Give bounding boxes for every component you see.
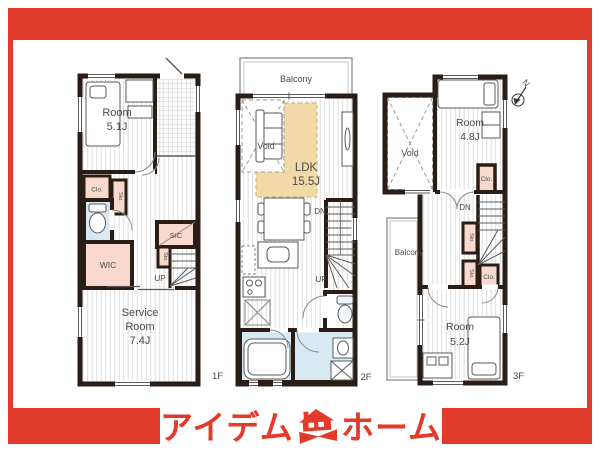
bathtub-icon (244, 339, 290, 379)
balcony-label: Balcony (280, 74, 313, 84)
svg-text:Room: Room (125, 321, 154, 333)
toilet-icon (89, 204, 106, 233)
floor-plan-flyer: Room 5.1J Clo. Sto. WIC SIC Sto. UP Serv… (0, 0, 600, 452)
refrigerator-icon (242, 246, 255, 274)
washbasin-icon (333, 338, 353, 358)
dn-label: DN (459, 203, 471, 212)
room48-label: Room (456, 117, 484, 129)
frame-right-line (587, 40, 592, 408)
frame-left-line (8, 40, 13, 408)
void-3f (388, 98, 433, 190)
ldk-label: LDK (295, 162, 318, 174)
clo-label: Clo. (481, 176, 493, 183)
desk-icon (423, 353, 452, 378)
balcony-3f (387, 218, 420, 380)
dn-label: DN (314, 207, 326, 216)
entrance-tile-floor (157, 78, 196, 156)
sic-label: SIC (170, 231, 183, 240)
room51-size: 5.1J (107, 121, 128, 133)
sto-label: Sto. (162, 252, 168, 262)
floor-label-1f: 1F (212, 371, 223, 382)
clo-label: Clo. (483, 274, 495, 281)
clo-label: Clo. (91, 187, 103, 194)
desk-icon (482, 112, 500, 138)
logo-text-left: アイデム (160, 401, 294, 449)
svg-text:7.4J: 7.4J (130, 335, 151, 347)
kitchen-sink-icon (258, 242, 298, 268)
north-label: N (520, 77, 532, 88)
frame-bottom-right-bar (442, 408, 592, 444)
up-label: UP (315, 275, 326, 284)
toilet-icon (337, 296, 353, 323)
floor-plan-2f: Balcony (225, 50, 380, 395)
cabinet-icon (342, 112, 353, 166)
void-label: Void (401, 148, 419, 158)
frame-bottom-left-bar (8, 408, 160, 444)
up-label: UP (154, 274, 165, 283)
dining-table-icon (258, 198, 310, 240)
ldk-size: 15.5J (292, 176, 320, 188)
room52-size: 5.2J (450, 336, 470, 348)
room48-size: 4.8J (460, 131, 480, 143)
frame-top-bar (8, 8, 592, 40)
balcony-label: Balcony (395, 248, 423, 257)
entrance-door (166, 58, 182, 74)
floor-label-2f: 2F (360, 372, 371, 383)
floor-plan-3f: N Room 4.8J Void Clo. DN Sto. Sto. Clo. … (378, 55, 538, 390)
bed-icon (438, 80, 498, 108)
sto-label: Sto. (468, 269, 474, 279)
north-compass-icon: N (512, 77, 532, 106)
washing-machine-icon (331, 361, 353, 380)
service-room-label: Service (122, 307, 159, 319)
company-logo: アイデム ホーム (160, 400, 442, 450)
sto-label: Sto. (468, 233, 474, 243)
house-logo-icon (298, 402, 337, 448)
floor-label-3f: 3F (513, 371, 524, 382)
stove-icon (243, 277, 265, 297)
void-label: Void (257, 141, 275, 151)
sto-label: Sto. (117, 192, 123, 202)
logo-text-right: ホーム (341, 401, 442, 449)
wic-label: WIC (100, 260, 117, 270)
room51-label: Room (102, 107, 131, 119)
balcony-2f: Balcony (240, 58, 352, 96)
sofa-icon (256, 110, 282, 162)
room52-label: Room (446, 321, 474, 333)
